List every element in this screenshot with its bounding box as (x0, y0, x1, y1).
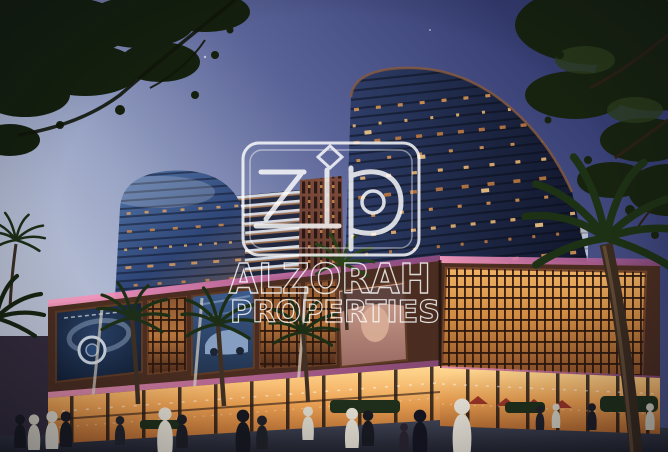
watermark-company-type: PROPERTIES (230, 295, 440, 330)
scene-svg: ALZORAH PROPERTIES (0, 0, 668, 452)
property-listing-photo: ALZORAH PROPERTIES (0, 0, 668, 452)
